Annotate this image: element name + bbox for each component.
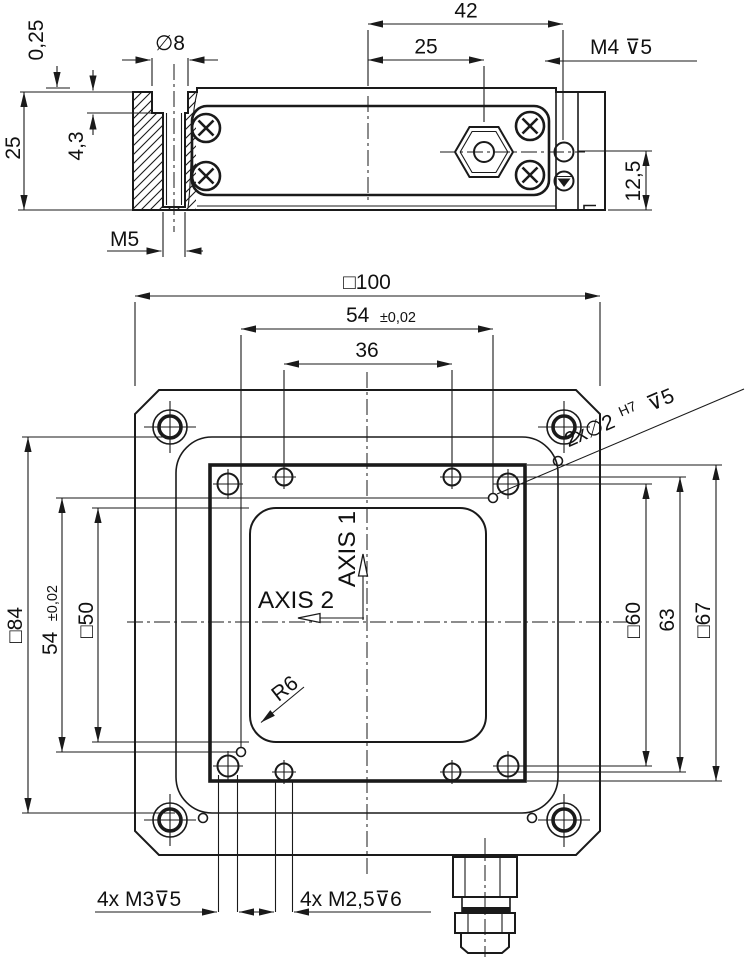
dim-54-left-label: 54 ±0,02 xyxy=(39,585,62,655)
dim-r6-label: R6 xyxy=(267,672,302,707)
corner-screw xyxy=(538,794,590,847)
top-view: AXIS 1 AXIS 2 R6 2x∅2 H7 ⊽5 □100 xyxy=(4,271,744,957)
dim-12-5-label: 12,5 xyxy=(622,161,645,202)
m25-hole xyxy=(272,465,296,489)
top-centerlines xyxy=(127,372,627,957)
corner-screw xyxy=(144,794,196,846)
dim-25-left-label: 25 xyxy=(2,136,25,159)
ground-screw xyxy=(555,172,574,191)
m25-holes xyxy=(272,465,464,784)
dim-42-label: 42 xyxy=(454,0,477,23)
axis-indicator: AXIS 1 AXIS 2 xyxy=(258,511,368,623)
dim-36-label: 36 xyxy=(355,339,378,362)
aperture-pocket xyxy=(250,508,486,742)
dim-sq50-label: □50 xyxy=(75,602,98,638)
dim-m4-label: M4 ⊽5 xyxy=(590,36,652,59)
dim-sq84-label: □84 xyxy=(4,607,27,643)
side-view: 25 0,25 4,3 ∅8 M5 42 xyxy=(2,0,697,257)
right-dimensions: □60 63 □67 xyxy=(622,465,716,781)
side-centerlines xyxy=(174,64,585,232)
dim-4-3-label: 4,3 xyxy=(65,131,88,160)
dim-sq60-label: □60 xyxy=(622,602,645,638)
dowel-hole xyxy=(237,748,246,757)
dim-dia8-label: ∅8 xyxy=(155,32,185,55)
m3-hole xyxy=(213,469,243,499)
axis1-label: AXIS 1 xyxy=(334,511,361,587)
section-hatch-block xyxy=(133,92,196,210)
dim-0-25-label: 0,25 xyxy=(25,20,48,61)
r6-callout: R6 xyxy=(261,672,304,723)
axis2-arrow xyxy=(298,614,320,623)
bottom-callouts: 4x M3⊽5 4x M2,5⊽6 xyxy=(95,775,431,912)
cover-panel xyxy=(192,106,549,195)
dim-m3-label: 4x M3⊽5 xyxy=(97,888,181,911)
dim-25-top-label: 25 xyxy=(414,36,437,59)
side-outline xyxy=(133,88,605,210)
dim-sq67-label: □67 xyxy=(692,602,715,638)
dowel-hole xyxy=(489,494,498,503)
top-extension-lines xyxy=(22,302,722,813)
m3-hole xyxy=(493,751,523,781)
dim-sq100-label: □100 xyxy=(343,271,391,294)
side-dimensions: 25 0,25 4,3 ∅8 M5 42 xyxy=(2,0,697,257)
m3-hole xyxy=(493,469,523,499)
top-dimensions: □100 54 ±0,02 36 xyxy=(135,271,600,364)
dim-54-top-label: 54 ±0,02 xyxy=(346,304,416,327)
dim-63-label: 63 xyxy=(656,608,679,631)
m3-holes xyxy=(213,469,523,781)
axis2-label: AXIS 2 xyxy=(258,587,334,614)
left-dimensions: □84 54 ±0,02 □50 xyxy=(4,437,98,813)
dim-m25-label: 4x M2,5⊽6 xyxy=(300,888,402,911)
dim-m5-label: M5 xyxy=(110,228,139,251)
m25-hole xyxy=(440,465,464,489)
drawing-canvas: 25 0,25 4,3 ∅8 M5 42 xyxy=(0,0,750,958)
